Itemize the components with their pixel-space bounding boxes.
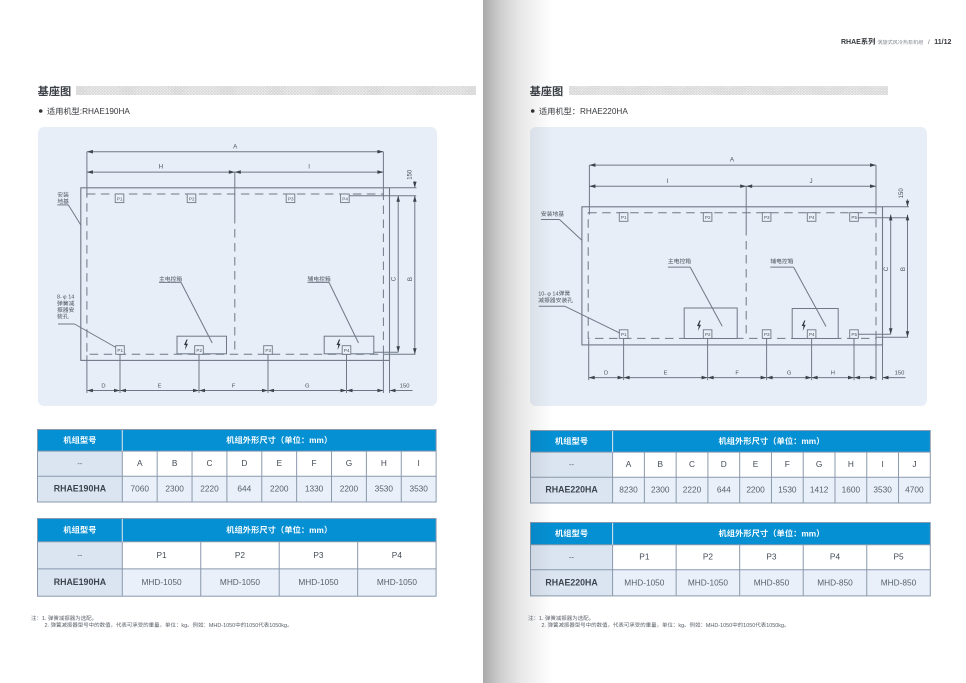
svg-text:MHD-1050: MHD-1050 bbox=[706, 622, 732, 628]
svg-text:RHAE190HA: RHAE190HA bbox=[54, 483, 107, 493]
svg-text:MHD-850: MHD-850 bbox=[754, 577, 790, 587]
svg-text:150: 150 bbox=[894, 370, 904, 376]
svg-text:P4: P4 bbox=[392, 549, 403, 559]
svg-text:MHD-1050: MHD-1050 bbox=[377, 577, 418, 587]
svg-text:1530: 1530 bbox=[778, 485, 797, 495]
svg-text:F: F bbox=[312, 458, 317, 468]
svg-text:2220: 2220 bbox=[683, 485, 702, 495]
svg-text:MHD-1050: MHD-1050 bbox=[220, 577, 261, 587]
svg-text:--: -- bbox=[78, 458, 83, 467]
svg-text:P2: P2 bbox=[188, 196, 194, 201]
svg-text:RHAE220HA: RHAE220HA bbox=[545, 577, 598, 587]
svg-text:P1: P1 bbox=[639, 552, 650, 562]
svg-text:G: G bbox=[816, 459, 822, 469]
svg-text:kg: kg bbox=[181, 622, 187, 628]
svg-text:--: -- bbox=[78, 550, 83, 559]
svg-text:8230: 8230 bbox=[619, 485, 638, 495]
svg-text:H: H bbox=[381, 458, 387, 468]
svg-text:mm: mm bbox=[801, 436, 816, 446]
svg-text:G: G bbox=[787, 370, 792, 376]
svg-text:J: J bbox=[809, 177, 812, 184]
svg-text:1330: 1330 bbox=[305, 483, 324, 493]
svg-text:RHAE220HA: RHAE220HA bbox=[545, 485, 598, 495]
svg-text:2220: 2220 bbox=[201, 483, 220, 493]
svg-text:kg: kg bbox=[678, 622, 684, 628]
svg-text:F: F bbox=[735, 370, 739, 376]
svg-text:P2: P2 bbox=[705, 215, 711, 220]
svg-text:644: 644 bbox=[238, 483, 252, 493]
svg-text:1050: 1050 bbox=[743, 622, 755, 628]
svg-text:E: E bbox=[663, 370, 667, 376]
svg-text:P3: P3 bbox=[287, 196, 293, 201]
svg-text:3530: 3530 bbox=[410, 483, 429, 493]
svg-text:150: 150 bbox=[899, 187, 905, 198]
svg-text:1050: 1050 bbox=[246, 622, 258, 628]
svg-text:P4: P4 bbox=[809, 332, 815, 337]
svg-text:P1: P1 bbox=[117, 348, 123, 353]
svg-text:150: 150 bbox=[399, 383, 409, 389]
svg-text:P3: P3 bbox=[265, 348, 271, 353]
svg-text:MHD-1050: MHD-1050 bbox=[688, 577, 729, 587]
svg-text:7060: 7060 bbox=[131, 483, 150, 493]
svg-text:mm: mm bbox=[801, 528, 816, 538]
svg-text:1050kg: 1050kg bbox=[269, 622, 287, 628]
svg-text:H: H bbox=[158, 164, 162, 171]
svg-text:RHAE: RHAE bbox=[841, 39, 861, 46]
svg-text:P3: P3 bbox=[314, 549, 325, 559]
svg-text:644: 644 bbox=[717, 485, 731, 495]
svg-text:MHD-850: MHD-850 bbox=[817, 577, 853, 587]
svg-text:--: -- bbox=[569, 460, 574, 469]
svg-text:3530: 3530 bbox=[375, 483, 394, 493]
svg-text:P4: P4 bbox=[343, 348, 349, 353]
svg-text:11/12: 11/12 bbox=[934, 39, 951, 46]
svg-text:MHD-850: MHD-850 bbox=[881, 577, 917, 587]
svg-text:P5: P5 bbox=[851, 215, 857, 220]
svg-text:2.: 2. bbox=[45, 622, 50, 628]
svg-text:P5: P5 bbox=[893, 552, 904, 562]
svg-text:H: H bbox=[831, 370, 835, 376]
svg-text:150: 150 bbox=[407, 169, 413, 180]
svg-text:φ: φ bbox=[63, 295, 67, 301]
svg-text:P1: P1 bbox=[621, 332, 627, 337]
svg-text:A: A bbox=[137, 458, 143, 468]
svg-text:14: 14 bbox=[552, 291, 558, 297]
svg-text:1.: 1. bbox=[42, 616, 47, 622]
svg-text:MHD-1050: MHD-1050 bbox=[624, 577, 665, 587]
svg-text:8-: 8- bbox=[57, 295, 62, 301]
svg-text:B: B bbox=[407, 277, 414, 281]
svg-text:F: F bbox=[785, 459, 790, 469]
svg-text:P2: P2 bbox=[703, 552, 714, 562]
svg-text:RHAE190HA: RHAE190HA bbox=[54, 577, 107, 587]
svg-text::RHAE190HA: :RHAE190HA bbox=[80, 107, 131, 116]
svg-text:P3: P3 bbox=[764, 332, 770, 337]
svg-text:2200: 2200 bbox=[340, 483, 359, 493]
svg-text:P1: P1 bbox=[621, 215, 627, 220]
svg-text:P3: P3 bbox=[766, 552, 777, 562]
svg-text:E: E bbox=[753, 459, 759, 469]
svg-text:B: B bbox=[657, 459, 663, 469]
svg-text:MHD-1050: MHD-1050 bbox=[142, 577, 183, 587]
svg-text:F: F bbox=[231, 383, 235, 389]
svg-text:P5: P5 bbox=[851, 332, 857, 337]
svg-text:2300: 2300 bbox=[166, 483, 185, 493]
svg-text:A: A bbox=[626, 459, 632, 469]
svg-text:I: I bbox=[666, 177, 668, 184]
svg-text:C: C bbox=[390, 276, 397, 281]
svg-text:P1: P1 bbox=[116, 196, 122, 201]
svg-text:P2: P2 bbox=[196, 348, 202, 353]
svg-text:G: G bbox=[346, 458, 352, 468]
svg-text:2200: 2200 bbox=[270, 483, 289, 493]
svg-text:P2: P2 bbox=[705, 332, 711, 337]
svg-text:P4: P4 bbox=[342, 196, 348, 201]
svg-text:2300: 2300 bbox=[651, 485, 670, 495]
svg-text:D: D bbox=[604, 370, 608, 376]
svg-text:14: 14 bbox=[68, 295, 74, 301]
svg-text:C: C bbox=[883, 266, 890, 271]
svg-text:E: E bbox=[157, 383, 161, 389]
svg-text:H: H bbox=[848, 459, 854, 469]
svg-text:1050kg: 1050kg bbox=[766, 622, 784, 628]
svg-text:MHD-1050: MHD-1050 bbox=[209, 622, 235, 628]
svg-text:C: C bbox=[207, 458, 213, 468]
svg-text:C: C bbox=[689, 459, 695, 469]
svg-text:4700: 4700 bbox=[905, 485, 924, 495]
svg-text:1600: 1600 bbox=[842, 485, 861, 495]
svg-text:P3: P3 bbox=[764, 215, 770, 220]
svg-text:MHD-1050: MHD-1050 bbox=[299, 577, 340, 587]
svg-text:D: D bbox=[101, 383, 105, 389]
svg-text:2200: 2200 bbox=[746, 485, 765, 495]
svg-text:P4: P4 bbox=[809, 215, 815, 220]
svg-text:I: I bbox=[881, 459, 883, 469]
svg-text:P4: P4 bbox=[830, 552, 841, 562]
svg-text:D: D bbox=[242, 458, 248, 468]
svg-text:1412: 1412 bbox=[810, 485, 829, 495]
svg-text:I: I bbox=[308, 164, 310, 171]
svg-text:3530: 3530 bbox=[873, 485, 892, 495]
svg-text:mm: mm bbox=[309, 435, 324, 445]
svg-text:P1: P1 bbox=[157, 549, 168, 559]
svg-text:G: G bbox=[304, 383, 309, 389]
svg-text:B: B bbox=[900, 266, 907, 270]
svg-text:--: -- bbox=[569, 552, 574, 561]
svg-text:B: B bbox=[172, 458, 178, 468]
svg-text:P2: P2 bbox=[235, 549, 246, 559]
svg-text:D: D bbox=[721, 459, 727, 469]
svg-text:J: J bbox=[912, 459, 916, 469]
svg-text:RHAE220HA: RHAE220HA bbox=[580, 107, 628, 116]
svg-text:mm: mm bbox=[309, 524, 324, 534]
svg-text:E: E bbox=[277, 458, 283, 468]
svg-text:I: I bbox=[418, 458, 420, 468]
svg-text:/: / bbox=[928, 39, 930, 46]
